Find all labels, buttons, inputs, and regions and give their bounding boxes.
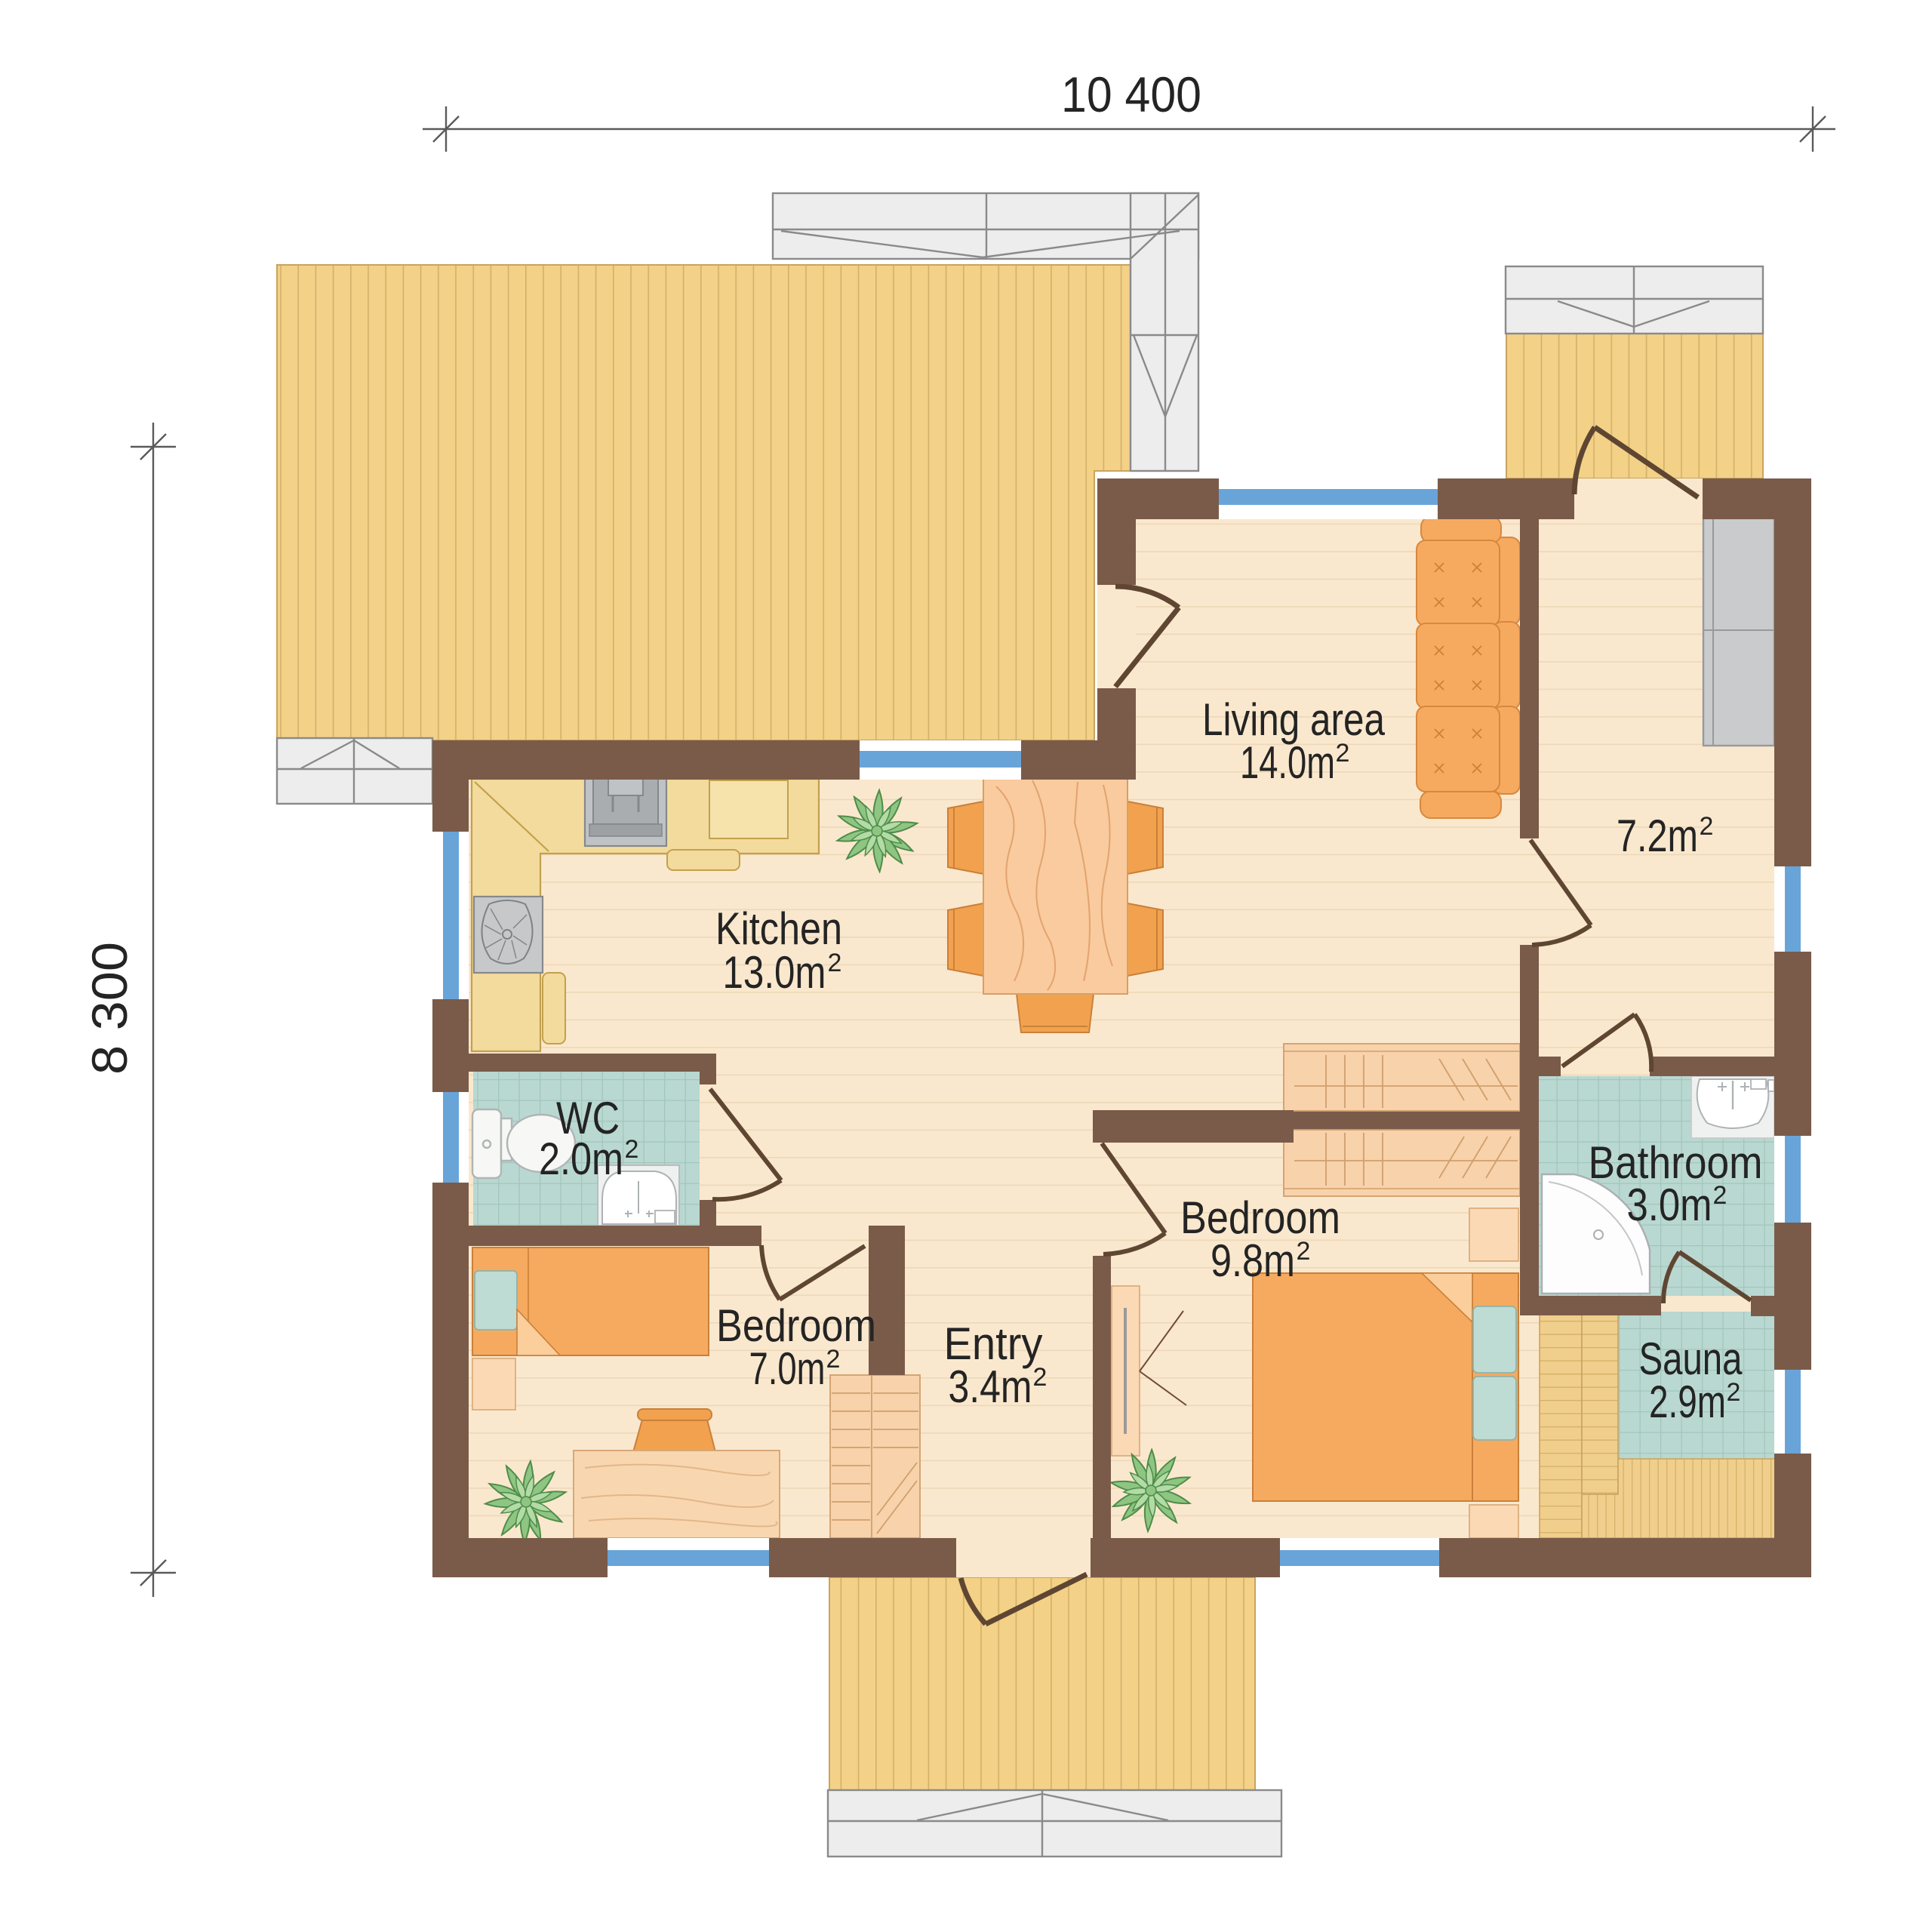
svg-text:10 400: 10 400 [1061,66,1201,122]
svg-text:2: 2 [625,1135,639,1164]
svg-text:2: 2 [1033,1363,1048,1392]
svg-text:8 300: 8 300 [82,942,137,1075]
svg-text:2: 2 [1297,1237,1311,1266]
svg-text:7.0m: 7.0m [749,1343,826,1394]
svg-text:2: 2 [1700,812,1714,841]
svg-text:2.0m: 2.0m [539,1134,623,1184]
svg-text:7.2m: 7.2m [1617,811,1698,861]
svg-text:2: 2 [1727,1378,1741,1407]
svg-text:9.8m: 9.8m [1211,1235,1295,1286]
svg-text:2: 2 [1713,1181,1727,1210]
svg-text:14.0m: 14.0m [1240,737,1335,788]
svg-text:2: 2 [826,1345,841,1374]
svg-text:2.9m: 2.9m [1649,1377,1726,1427]
svg-text:13.0m: 13.0m [723,947,826,998]
svg-text:2: 2 [828,949,842,977]
svg-text:2: 2 [1336,739,1350,768]
svg-text:Kitchen: Kitchen [715,903,842,954]
svg-text:3.4m: 3.4m [949,1361,1032,1412]
svg-text:3.0m: 3.0m [1627,1180,1712,1230]
